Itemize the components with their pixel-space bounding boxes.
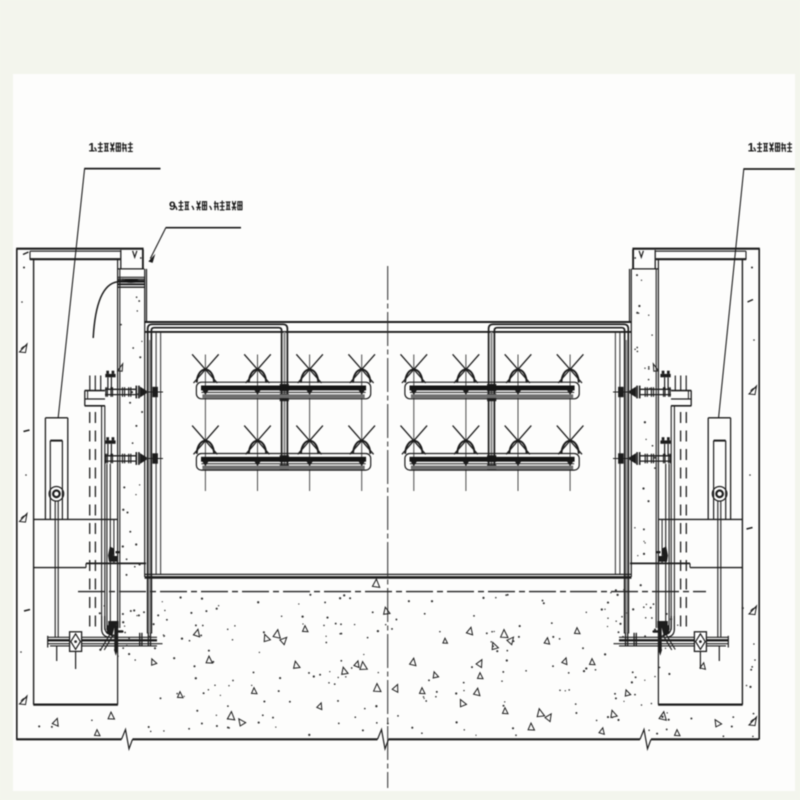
svg-text:1: 1	[88, 141, 95, 155]
svg-text:9: 9	[169, 199, 176, 213]
svg-text:1: 1	[748, 141, 755, 155]
